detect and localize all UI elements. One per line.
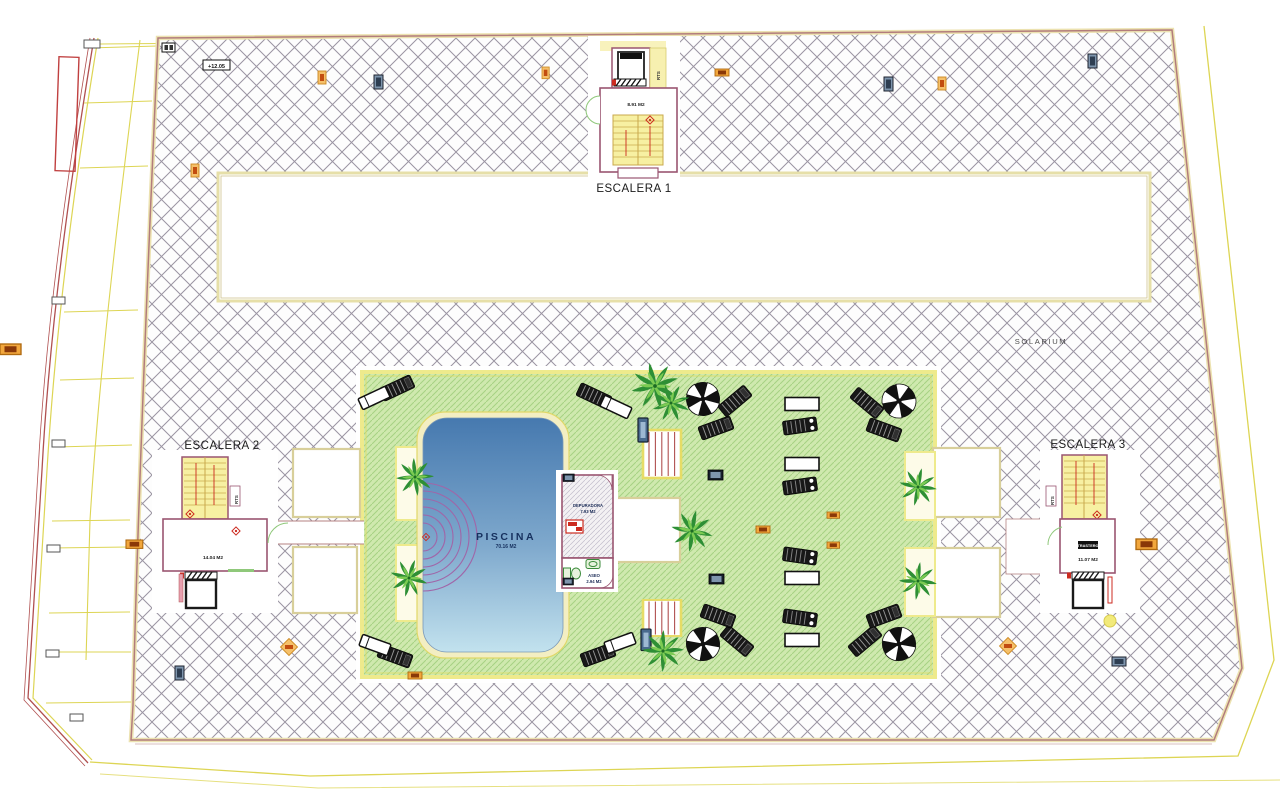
monitor-tag-icon [709,574,724,584]
table-icon [785,398,819,411]
elevator-3-icon [1067,572,1104,608]
escalera3-stairs [1062,455,1107,519]
aseo-title: ASEO [588,573,601,578]
pool-area-label: 70.16 M2 [496,544,517,550]
navy-tag-icon [374,75,383,89]
depuradora-title: DEPURADORA [573,503,603,508]
escalera2-stairs [182,457,228,519]
facade-red-frame [55,57,79,172]
orange-tag-icon [542,67,549,79]
depuradora-area: 7.93 M2 [580,509,596,514]
escalera-2: RTS 14.04 M2 ESCALERA 2 [152,440,288,613]
orange-tag-icon [827,512,840,518]
orange-tag-icon [191,164,199,177]
escalera-1: RTS 8.91 M2 ESCALERA 1 [586,36,680,195]
site-outer-boundary2 [100,774,1280,788]
floor-plan-svg: PISCINA 70.16 M2 DEPURADORA 7.93 M2 ASEO… [0,0,1280,800]
shower-bottom-icon [641,629,651,651]
escalera2-threshold [228,569,254,572]
monitor-tag-icon [708,470,723,480]
floor-plan-canvas: PISCINA 70.16 M2 DEPURADORA 7.93 M2 ASEO… [0,0,1280,800]
orange-tag-icon [408,672,422,679]
escalera1-area-label: 8.91 M2 [627,102,645,108]
level-tag: +12.05 [203,60,230,70]
elevator-2-icon [180,572,217,608]
pump-symbol [566,520,583,533]
pool-title: PISCINA [476,531,536,543]
rit-tag-icon [563,474,574,482]
table-icon [785,634,819,647]
escalera3-title: ESCALERA 3 [1050,439,1125,451]
orange-tag-icon [756,526,770,533]
navy-tag-icon [1088,54,1097,68]
escalera3-yellow-marker [1104,615,1116,627]
escalera-3: RTS TRASTERO 11.07 M2 ESCALERA 3 [1040,439,1140,627]
navy-tag-icon [884,77,893,91]
orange-tag-icon [318,71,326,84]
elevator-1-doors [612,79,646,86]
pergola-top-icon [643,430,681,478]
table-icon [785,458,819,471]
swimming-pool: PISCINA 70.16 M2 [417,412,569,658]
aseo-tag-icon [563,578,574,585]
escalera2-title: ESCALERA 2 [184,440,259,452]
aseo-area: 2.94 M2 [586,579,602,584]
escalera3-storage-label: TRASTERO [1078,544,1099,548]
solarium-label: SOLARIUM [1015,337,1067,346]
orange-tag-icon [0,344,21,355]
shower-top-icon [638,418,648,442]
pool-plant-rooms: DEPURADORA 7.93 M2 ASEO 2.94 M2 [556,470,618,592]
orange-tag-icon [1136,539,1157,550]
rts-label-2: RTS [234,495,239,504]
orange-tag-icon [715,69,729,76]
orange-tag-icon [126,540,143,548]
navy-tag-icon [1112,657,1126,666]
orange-tag-icon [938,77,946,90]
escalera3-area-label: 11.07 M2 [1078,557,1098,563]
escalera1-stairs [613,115,663,165]
black-tag-icon [162,43,175,52]
navy-tag-icon [175,666,184,680]
svg-text:+12.05: +12.05 [208,64,225,70]
rts-label-3: RTS [1050,496,1055,505]
roof-void-opening [218,173,1150,301]
rts-label-1: RTS [656,71,661,80]
table-icon [785,572,819,585]
escalera2-area-label: 14.04 M2 [203,555,223,561]
escalera1-title: ESCALERA 1 [596,183,671,195]
orange-tag-icon [827,542,840,548]
